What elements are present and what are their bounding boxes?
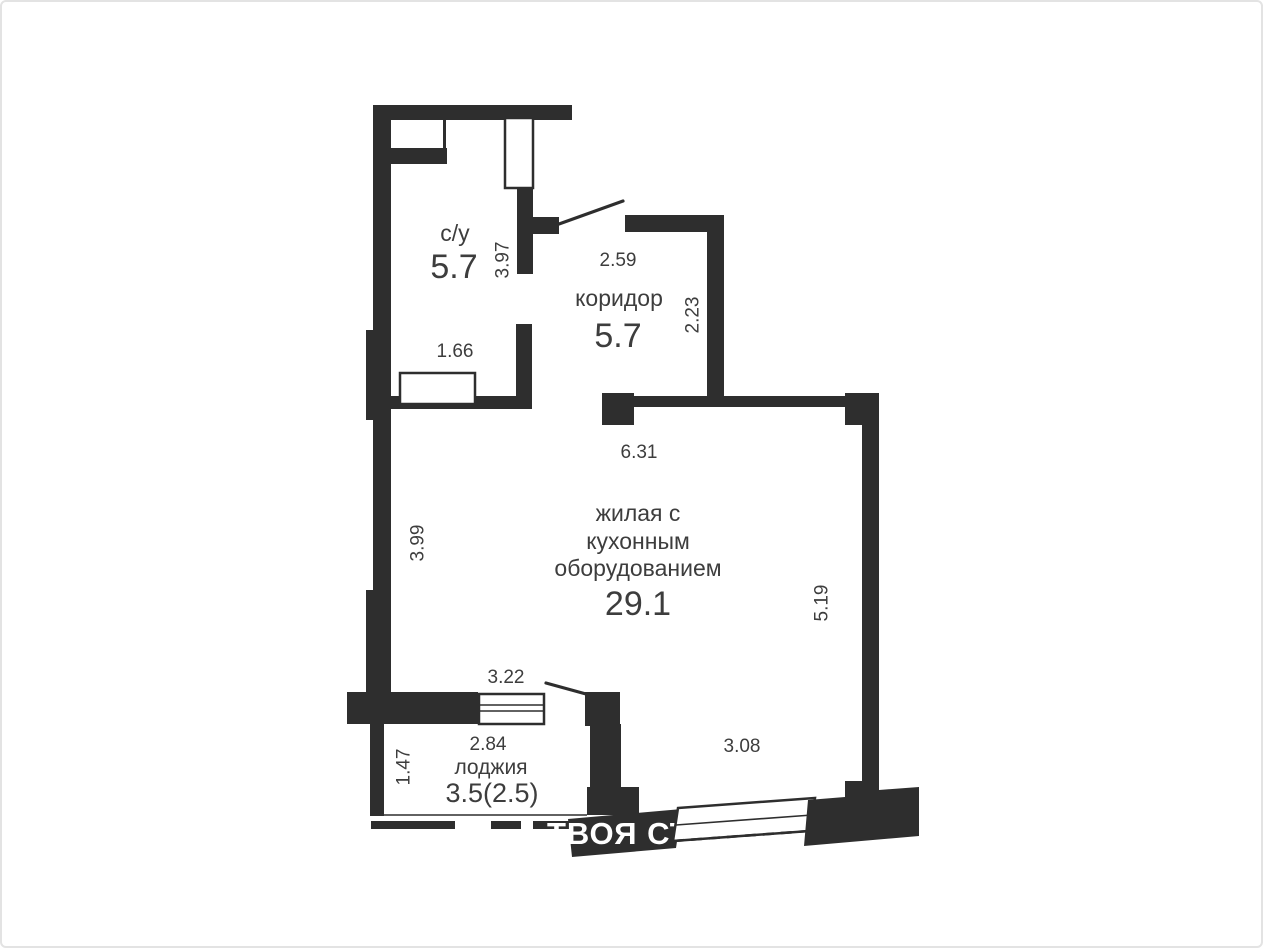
wall-loggia-column-base — [587, 787, 639, 815]
loggia-door-leaf — [546, 683, 586, 694]
living-name-line3: оборудованием — [554, 555, 721, 581]
bathroom-shaft-opening — [505, 118, 533, 188]
floorplan-svg: ТВОЯ СТОЛИЦА с/у 5.7 3.97 1.66 2.59 кори… — [2, 2, 1263, 948]
wall-entry-stub — [533, 217, 559, 234]
vent-shaft-wall — [391, 148, 447, 164]
wall-left-pilaster-lower — [366, 590, 391, 692]
wall-bathroom-right-upper — [517, 185, 533, 274]
loggia-name: лоджия — [454, 756, 527, 779]
wall-loggia-left — [370, 724, 384, 816]
dim-loggia-depth: 1.47 — [393, 749, 414, 786]
wall-right — [862, 393, 879, 783]
loggia-window-frame — [479, 694, 544, 724]
wall-top — [374, 105, 572, 120]
dim-living-right-height: 5.19 — [811, 585, 832, 622]
wall-living-top — [634, 396, 845, 407]
corridor-area: 5.7 — [594, 317, 641, 355]
wall-loggia-top — [347, 692, 478, 724]
dim-living-bottom-width: 3.08 — [724, 736, 761, 757]
bathroom-name: с/у — [440, 220, 470, 246]
wall-bottom-right-block — [804, 781, 919, 846]
walls — [347, 105, 879, 816]
living-name-line2: кухонным — [586, 528, 690, 554]
dim-bathroom-opening: 1.66 — [437, 341, 474, 362]
wall-loggia-right-column — [590, 724, 621, 794]
entry-door-leaf — [559, 201, 623, 224]
vent-shaft-edge — [443, 120, 446, 150]
loggia-area: 3.5(2.5) — [445, 778, 538, 808]
wall-corridor-right — [707, 215, 724, 397]
wall-loggia-divider — [585, 692, 620, 726]
wall-left-pilaster-upper — [366, 330, 391, 420]
loggia-window — [479, 694, 544, 724]
living-name-line1: жилая с — [596, 500, 681, 526]
dim-loggia-width: 2.84 — [470, 734, 507, 755]
dim-living-left-height: 3.99 — [407, 525, 428, 562]
living-area: 29.1 — [605, 585, 671, 623]
dim-corridor-width: 2.59 — [600, 250, 637, 271]
dim-living-width: 6.31 — [621, 442, 658, 463]
bathroom-area: 5.7 — [430, 248, 477, 286]
dim-corridor-depth: 2.23 — [682, 297, 703, 334]
wall-pillar — [602, 393, 634, 425]
floorplan-canvas: ТВОЯ СТОЛИЦА с/у 5.7 3.97 1.66 2.59 кори… — [0, 0, 1263, 948]
corridor-name: коридор — [575, 285, 663, 311]
bathroom-cabinet — [400, 373, 475, 404]
dim-bathroom-height: 3.97 — [492, 242, 513, 279]
dim-loggia-opening-width: 3.22 — [488, 667, 525, 688]
